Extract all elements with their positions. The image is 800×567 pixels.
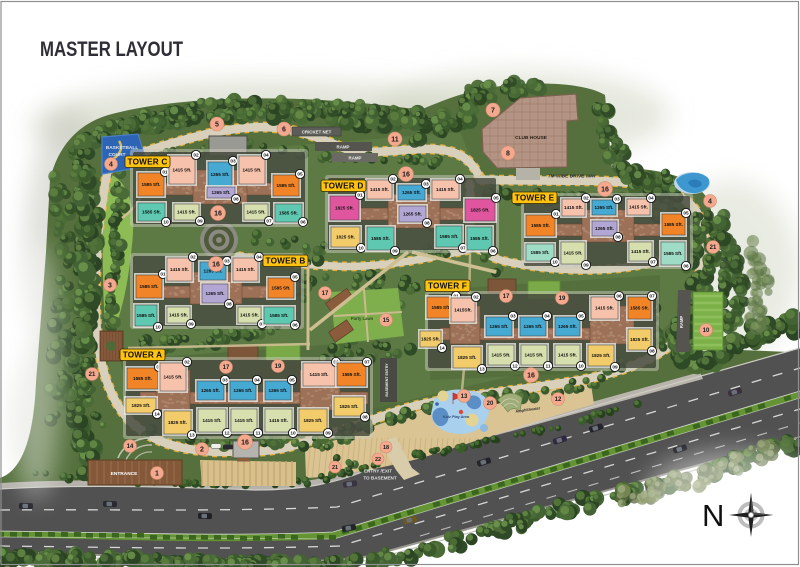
svg-text:1415 Sft.: 1415 Sft. xyxy=(243,168,262,173)
svg-text:1265 Sft.: 1265 Sft. xyxy=(558,324,577,329)
svg-text:08: 08 xyxy=(615,235,621,241)
svg-text:1265 Sft.: 1265 Sft. xyxy=(595,226,614,231)
svg-text:RAMP: RAMP xyxy=(337,145,350,150)
svg-text:1585 Sft.: 1585 Sft. xyxy=(630,306,649,311)
svg-text:02: 02 xyxy=(390,177,396,183)
svg-text:1265 Sft.: 1265 Sft. xyxy=(206,291,225,296)
svg-text:1265 Sft.: 1265 Sft. xyxy=(211,172,230,177)
svg-text:06: 06 xyxy=(616,294,622,300)
svg-text:TOWER B: TOWER B xyxy=(266,257,306,266)
svg-text:TOWER E: TOWER E xyxy=(515,194,555,203)
svg-text:07: 07 xyxy=(266,219,272,225)
svg-text:1415 Sft.: 1415 Sft. xyxy=(236,267,255,272)
svg-text:08: 08 xyxy=(424,221,430,227)
svg-text:07: 07 xyxy=(364,360,370,366)
svg-text:1585 Sft.: 1585 Sft. xyxy=(371,236,390,241)
svg-text:1415Sft.: 1415Sft. xyxy=(454,308,472,313)
svg-text:1415 Sft.: 1415 Sft. xyxy=(247,210,266,215)
svg-text:1825 Sft.: 1825 Sft. xyxy=(168,420,187,425)
svg-text:BASEMENT ENTRY: BASEMENT ENTRY xyxy=(385,363,389,397)
svg-text:1585 Sft.: 1585 Sft. xyxy=(440,234,459,239)
svg-text:1415 Sft.: 1415 Sft. xyxy=(629,205,648,210)
svg-text:1415 Sft.: 1415 Sft. xyxy=(564,205,583,210)
svg-text:02: 02 xyxy=(184,360,190,366)
svg-text:08: 08 xyxy=(362,415,368,421)
svg-text:COURT: COURT xyxy=(108,152,125,158)
svg-text:05: 05 xyxy=(297,172,303,178)
svg-text:1265 Sft.: 1265 Sft. xyxy=(269,388,288,393)
svg-text:10: 10 xyxy=(163,220,169,226)
svg-text:05: 05 xyxy=(493,196,499,202)
svg-text:1415 Sft.: 1415 Sft. xyxy=(173,168,192,173)
svg-text:09: 09 xyxy=(197,219,203,225)
svg-text:04: 04 xyxy=(457,177,463,183)
svg-text:06: 06 xyxy=(683,264,689,270)
svg-text:14: 14 xyxy=(154,412,160,418)
svg-text:7M WIDE DRIVE WAY: 7M WIDE DRIVE WAY xyxy=(548,174,597,180)
svg-text:1585 Sft.: 1585 Sft. xyxy=(342,372,361,377)
svg-text:1415 Sft.: 1415 Sft. xyxy=(631,249,650,254)
svg-text:Kidz Play Area: Kidz Play Area xyxy=(443,415,470,419)
svg-text:1265 Sft.: 1265 Sft. xyxy=(402,190,421,195)
svg-text:02: 02 xyxy=(190,255,196,261)
svg-text:04: 04 xyxy=(544,314,550,320)
svg-text:1415 Sft.: 1415 Sft. xyxy=(235,418,254,423)
svg-text:04: 04 xyxy=(648,196,654,202)
svg-text:03: 03 xyxy=(614,197,620,203)
svg-text:1415 Sft.: 1415 Sft. xyxy=(370,187,389,192)
svg-text:03: 03 xyxy=(222,378,228,384)
svg-text:1825 Sft.: 1825 Sft. xyxy=(132,403,151,408)
svg-text:11: 11 xyxy=(255,431,260,437)
svg-text:1585 Sft.: 1585 Sft. xyxy=(277,183,296,188)
svg-text:06: 06 xyxy=(300,220,306,226)
svg-text:10: 10 xyxy=(155,325,161,331)
svg-text:1025 Sft.: 1025 Sft. xyxy=(336,235,355,240)
svg-text:06: 06 xyxy=(490,249,496,255)
svg-text:04: 04 xyxy=(263,153,269,159)
svg-text:1585 Sft.: 1585 Sft. xyxy=(137,313,156,318)
svg-text:1415 Sft.: 1415 Sft. xyxy=(203,418,222,423)
svg-text:02: 02 xyxy=(473,295,479,301)
svg-text:1265 Sft.: 1265 Sft. xyxy=(234,388,253,393)
svg-text:1585 Sft.: 1585 Sft. xyxy=(270,313,289,318)
svg-text:TOWER D: TOWER D xyxy=(324,182,364,191)
svg-text:1415 Sft.: 1415 Sft. xyxy=(177,210,196,215)
svg-text:1585 Sft.: 1585 Sft. xyxy=(664,251,683,256)
svg-text:1585 Sft.: 1585 Sft. xyxy=(664,222,683,227)
svg-text:1825 Sft.: 1825 Sft. xyxy=(335,206,354,211)
svg-text:04: 04 xyxy=(254,378,260,384)
svg-text:03: 03 xyxy=(510,314,516,320)
svg-text:1265 Sft.: 1265 Sft. xyxy=(403,212,422,217)
svg-text:1585 Sft.: 1585 Sft. xyxy=(142,182,161,187)
svg-text:TOWER A: TOWER A xyxy=(123,351,163,360)
svg-text:03: 03 xyxy=(423,182,429,188)
svg-text:TO BASEMENT: TO BASEMENT xyxy=(363,476,397,481)
svg-text:05: 05 xyxy=(292,275,298,281)
svg-text:RAMP: RAMP xyxy=(349,156,362,161)
svg-text:1585 Sft.: 1585 Sft. xyxy=(279,211,298,216)
svg-text:09: 09 xyxy=(392,249,398,255)
svg-text:TOWER C: TOWER C xyxy=(128,158,168,167)
svg-text:1415 Sft.: 1415 Sft. xyxy=(564,251,583,256)
svg-text:CRICKET NET: CRICKET NET xyxy=(302,130,332,135)
svg-text:1825 Sft.: 1825 Sft. xyxy=(304,418,323,423)
svg-text:1265 Sft.: 1265 Sft. xyxy=(201,388,220,393)
svg-text:09: 09 xyxy=(583,263,589,269)
svg-text:13: 13 xyxy=(189,433,195,439)
svg-text:1265 Sft.: 1265 Sft. xyxy=(595,205,614,210)
svg-text:1585 Sft.: 1585 Sft. xyxy=(531,250,550,255)
svg-text:08: 08 xyxy=(233,197,239,203)
svg-text:1585 Sft.: 1585 Sft. xyxy=(432,305,451,310)
svg-text:10: 10 xyxy=(358,246,364,252)
svg-text:1265 Sft.: 1265 Sft. xyxy=(212,190,231,195)
svg-text:1415 Sft.: 1415 Sft. xyxy=(310,372,329,377)
svg-text:1265 Sft.: 1265 Sft. xyxy=(490,324,509,329)
svg-text:1415 Sft.: 1415 Sft. xyxy=(170,267,189,272)
svg-text:1585 Sft.: 1585 Sft. xyxy=(272,286,291,291)
svg-text:10: 10 xyxy=(552,260,558,266)
svg-text:ENTRY /EXIT: ENTRY /EXIT xyxy=(364,469,392,474)
svg-text:01: 01 xyxy=(553,212,559,218)
svg-text:05: 05 xyxy=(289,378,295,384)
svg-text:1415 Sft.: 1415 Sft. xyxy=(164,375,183,380)
svg-text:07: 07 xyxy=(650,260,656,266)
svg-text:14: 14 xyxy=(439,346,445,352)
svg-text:03: 03 xyxy=(230,159,236,165)
svg-text:04: 04 xyxy=(256,255,262,261)
svg-text:1585 Sft.: 1585 Sft. xyxy=(133,376,152,381)
svg-text:03: 03 xyxy=(224,259,230,265)
svg-text:07: 07 xyxy=(649,294,655,300)
svg-text:1265 Sft.: 1265 Sft. xyxy=(524,324,543,329)
svg-text:Party Lawn: Party Lawn xyxy=(351,316,374,321)
svg-text:09: 09 xyxy=(325,431,331,437)
svg-text:10: 10 xyxy=(290,431,296,437)
svg-text:02: 02 xyxy=(193,153,199,159)
svg-text:1415 Sft.: 1415 Sft. xyxy=(269,418,288,423)
svg-text:1585 Sft.: 1585 Sft. xyxy=(531,223,550,228)
svg-text:1415 Sft.: 1415 Sft. xyxy=(595,306,614,311)
svg-text:05: 05 xyxy=(683,211,689,217)
svg-text:09: 09 xyxy=(188,322,194,328)
svg-text:01: 01 xyxy=(357,193,363,199)
svg-text:05: 05 xyxy=(578,314,584,320)
svg-text:1825 Sft.: 1825 Sft. xyxy=(471,208,490,213)
svg-text:1825 Sft.: 1825 Sft. xyxy=(340,404,359,409)
svg-text:1585 Sft.: 1585 Sft. xyxy=(470,236,489,241)
svg-text:1415 Sft.: 1415 Sft. xyxy=(436,187,455,192)
svg-text:1415 Sft.: 1415 Sft. xyxy=(240,313,259,318)
svg-text:1415 Sft.: 1415 Sft. xyxy=(169,313,188,318)
svg-text:02: 02 xyxy=(583,196,589,202)
svg-text:08: 08 xyxy=(226,302,232,308)
svg-text:1585 Sft.: 1585 Sft. xyxy=(142,210,161,215)
svg-text:ENTRANCE: ENTRANCE xyxy=(111,471,138,477)
svg-text:1825 Sft.: 1825 Sft. xyxy=(421,337,440,342)
svg-text:CLUB HOUSE: CLUB HOUSE xyxy=(515,135,548,141)
svg-text:06: 06 xyxy=(292,323,298,329)
svg-text:RAMP: RAMP xyxy=(679,316,684,329)
svg-text:1585 Sft.: 1585 Sft. xyxy=(140,284,159,289)
